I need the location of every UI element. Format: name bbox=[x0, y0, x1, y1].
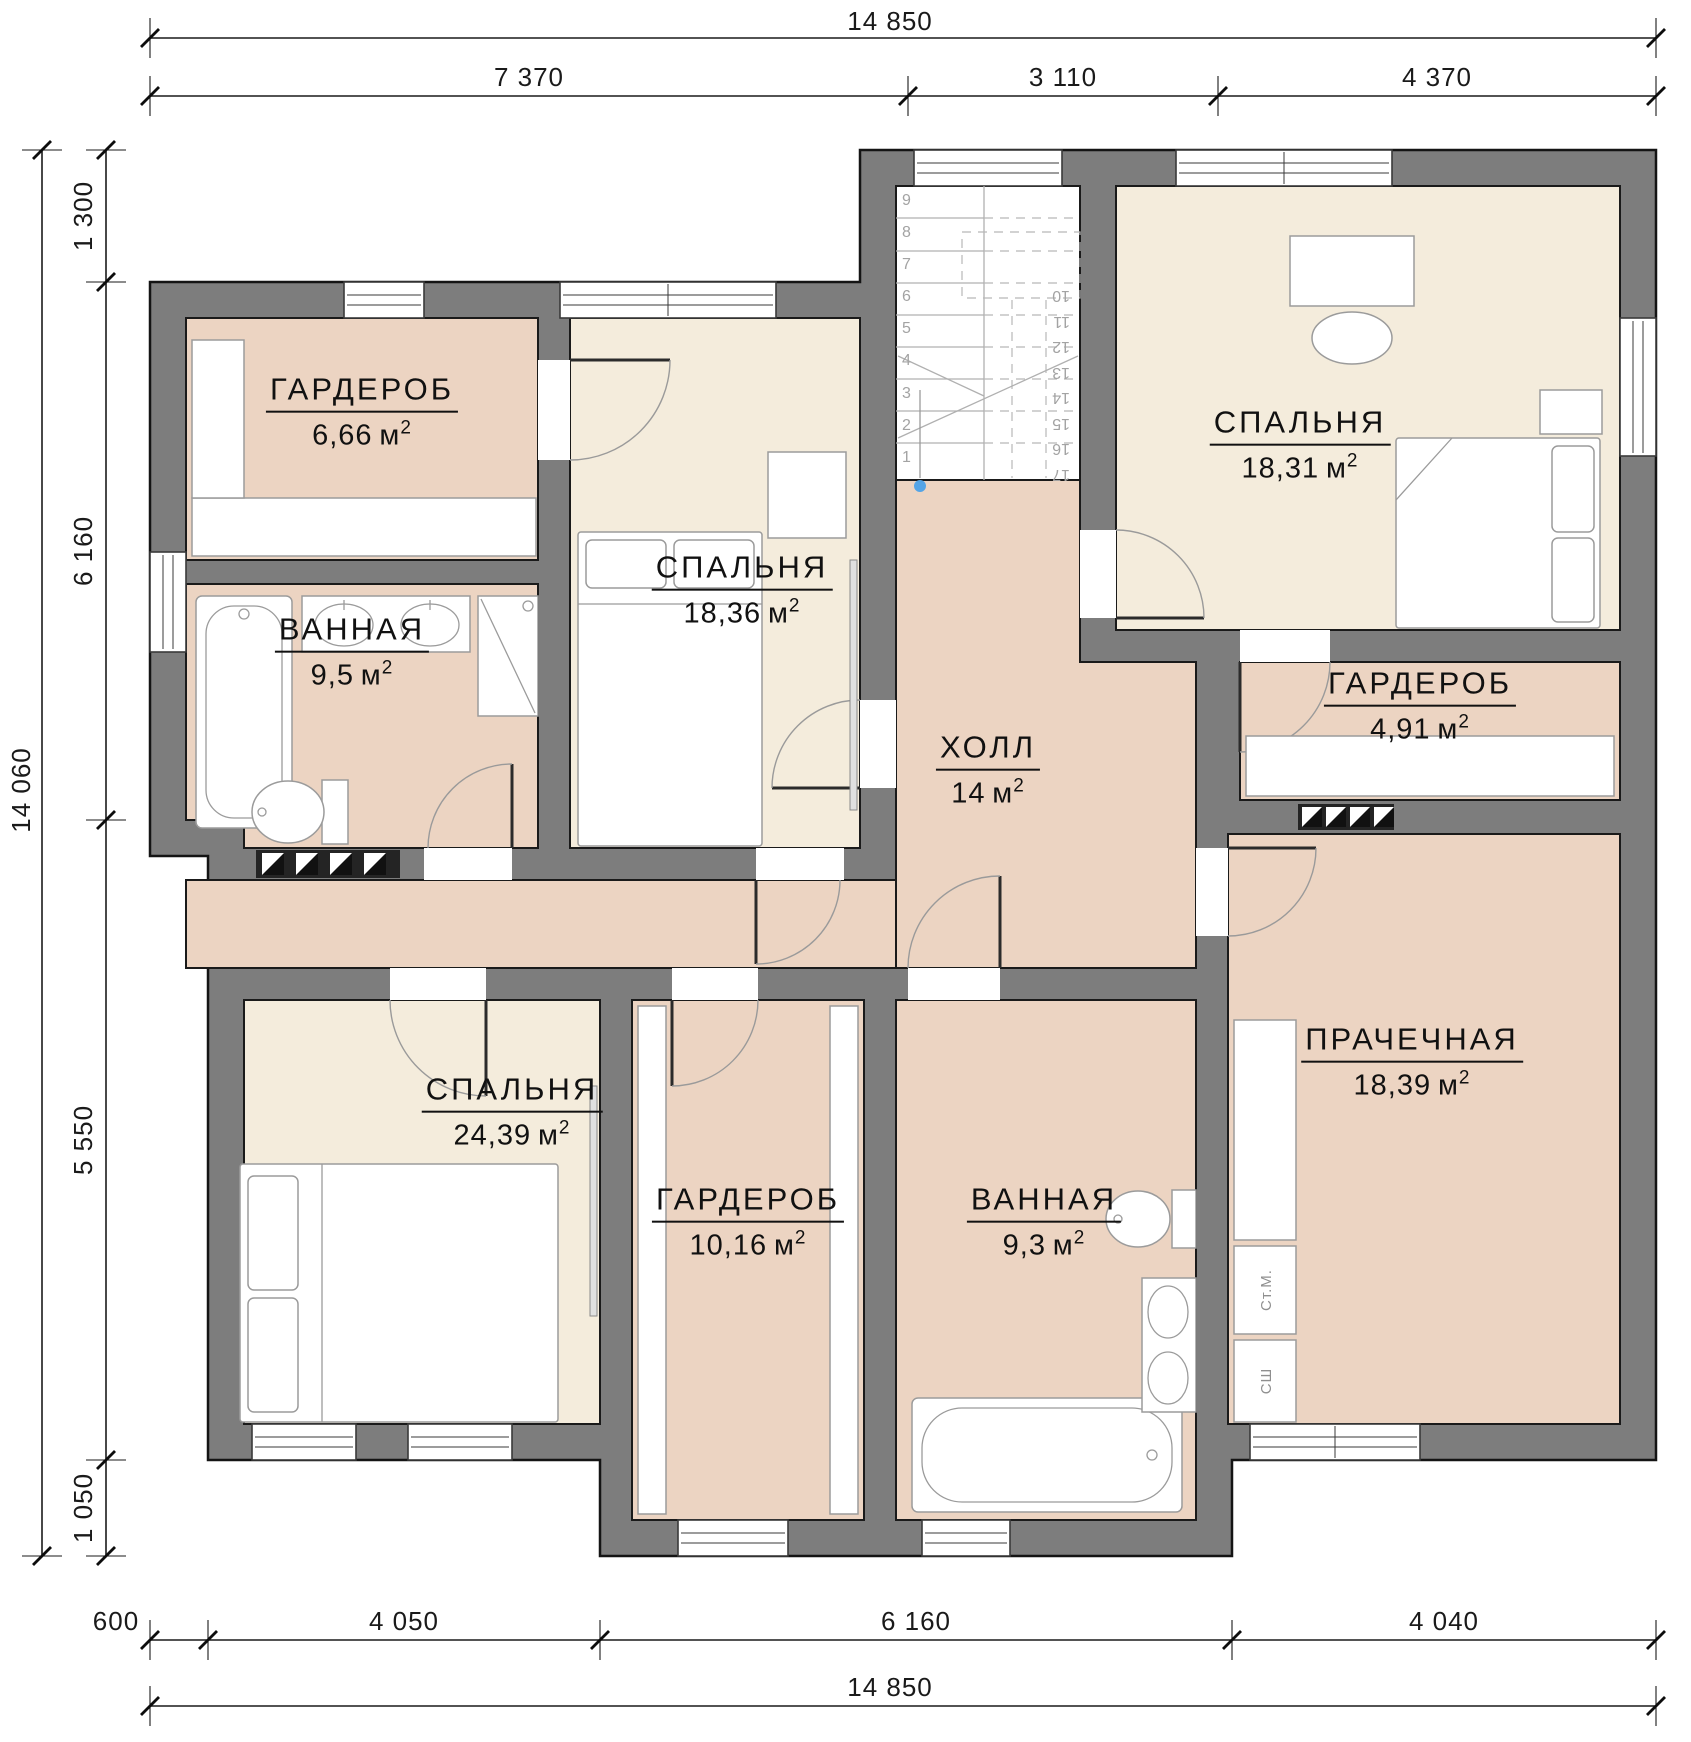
svg-text:4 050: 4 050 bbox=[369, 1606, 439, 1636]
room-label-bedroom-1836: СПАЛЬНЯ 18,36 м2 bbox=[652, 550, 833, 631]
room-floor-stairwell bbox=[896, 186, 1080, 480]
svg-text:13: 13 bbox=[1052, 364, 1070, 381]
window bbox=[922, 1520, 1010, 1556]
svg-text:Ст.М.: Ст.М. bbox=[1258, 1269, 1275, 1311]
vent-grille-right bbox=[1298, 804, 1394, 830]
svg-text:10: 10 bbox=[1052, 287, 1070, 304]
wardrobe-cabinet bbox=[192, 340, 244, 498]
svg-text:3 110: 3 110 bbox=[1029, 62, 1097, 92]
drying-cabinet: СШ bbox=[1234, 1340, 1296, 1422]
svg-text:6: 6 bbox=[902, 288, 911, 305]
window bbox=[678, 1520, 788, 1556]
window bbox=[914, 150, 1062, 186]
bed-double bbox=[1396, 438, 1600, 628]
svg-text:14 850: 14 850 bbox=[847, 1672, 933, 1702]
room-label-laundry-1839: ПРАЧЕЧНАЯ 18,39 м2 bbox=[1301, 1022, 1523, 1103]
svg-text:5: 5 bbox=[902, 320, 911, 337]
svg-text:2: 2 bbox=[902, 417, 911, 434]
room-label-hall-14: ХОЛЛ 14 м2 bbox=[936, 730, 1040, 811]
svg-text:14 060: 14 060 bbox=[6, 747, 36, 833]
bed-double bbox=[240, 1164, 558, 1422]
toilet bbox=[252, 780, 348, 844]
dimension-top-segments: 7 370 3 110 4 370 bbox=[141, 62, 1665, 116]
svg-text:4: 4 bbox=[902, 352, 911, 369]
dimension-left-segments: 1 300 6 160 5 550 1 050 bbox=[68, 141, 126, 1565]
nightstand bbox=[1540, 390, 1602, 434]
svg-text:9: 9 bbox=[902, 192, 911, 209]
double-sink bbox=[1142, 1278, 1196, 1412]
window bbox=[560, 282, 776, 318]
window bbox=[1176, 150, 1392, 186]
svg-text:1 300: 1 300 bbox=[68, 181, 98, 251]
window bbox=[1620, 318, 1656, 456]
svg-text:11: 11 bbox=[1053, 313, 1070, 330]
svg-text:600: 600 bbox=[93, 1606, 139, 1636]
window bbox=[150, 552, 186, 652]
dimension-top-overall: 14 850 bbox=[141, 6, 1665, 58]
svg-text:15: 15 bbox=[1052, 415, 1070, 432]
room-label-bedroom-1831: СПАЛЬНЯ 18,31 м2 bbox=[1210, 405, 1391, 486]
dimension-bottom-overall: 14 850 bbox=[141, 1672, 1665, 1726]
window bbox=[1250, 1424, 1420, 1460]
tv-panel bbox=[850, 560, 857, 810]
room-label-garderob-491: ГАРДЕРОБ 4,91 м2 bbox=[1324, 666, 1516, 747]
svg-text:6 160: 6 160 bbox=[68, 516, 98, 586]
svg-text:4 040: 4 040 bbox=[1409, 1606, 1479, 1636]
window bbox=[408, 1424, 512, 1460]
floor-plan-drawing: 1 2 3 4 5 6 7 8 9 10 11 12 13 14 15 16 1… bbox=[0, 0, 1691, 1742]
wardrobe-shelf bbox=[192, 498, 536, 556]
washing-machine: Ст.М. bbox=[1234, 1246, 1296, 1334]
room-label-bedroom-2439: СПАЛЬНЯ 24,39 м2 bbox=[422, 1072, 603, 1153]
window bbox=[252, 1424, 356, 1460]
svg-text:СШ: СШ bbox=[1258, 1368, 1275, 1395]
svg-text:6 160: 6 160 bbox=[881, 1606, 951, 1636]
stair-step-numbers-lower: 1 2 3 4 5 6 7 8 9 bbox=[902, 192, 911, 466]
svg-text:14: 14 bbox=[1052, 389, 1070, 406]
svg-text:4 370: 4 370 bbox=[1402, 62, 1472, 92]
room-label-bathroom-95: ВАННАЯ 9,5 м2 bbox=[275, 612, 429, 693]
dresser bbox=[768, 452, 846, 538]
shower bbox=[478, 596, 538, 716]
room-label-garderob-1016: ГАРДЕРОБ 10,16 м2 bbox=[652, 1182, 844, 1263]
svg-text:5 550: 5 550 bbox=[68, 1105, 98, 1175]
svg-text:12: 12 bbox=[1052, 338, 1070, 355]
svg-text:17: 17 bbox=[1052, 466, 1070, 483]
floor-plan-page: 1 2 3 4 5 6 7 8 9 10 11 12 13 14 15 16 1… bbox=[0, 0, 1691, 1742]
laundry-cabinet bbox=[1234, 1020, 1296, 1240]
bathtub bbox=[912, 1398, 1182, 1512]
room-floor-corridor bbox=[186, 880, 896, 968]
vent-grille-left bbox=[256, 850, 400, 878]
svg-text:3: 3 bbox=[902, 385, 911, 402]
svg-text:7 370: 7 370 bbox=[494, 62, 564, 92]
svg-text:1: 1 bbox=[902, 449, 911, 466]
dimension-bottom-segments: 600 4 050 6 160 4 040 bbox=[93, 1606, 1665, 1660]
dimension-left-overall: 14 060 bbox=[6, 141, 62, 1565]
svg-text:7: 7 bbox=[902, 256, 911, 273]
svg-text:14 850: 14 850 bbox=[847, 6, 933, 36]
room-label-garderob-666: ГАРДЕРОБ 6,66 м2 bbox=[266, 372, 458, 453]
svg-text:1 050: 1 050 bbox=[68, 1473, 98, 1543]
window bbox=[344, 282, 424, 318]
room-label-bathroom-93: ВАННАЯ 9,3 м2 bbox=[967, 1182, 1121, 1263]
stair-entry-marker-dot bbox=[914, 480, 926, 492]
svg-text:8: 8 bbox=[902, 224, 911, 241]
svg-text:16: 16 bbox=[1052, 440, 1070, 457]
